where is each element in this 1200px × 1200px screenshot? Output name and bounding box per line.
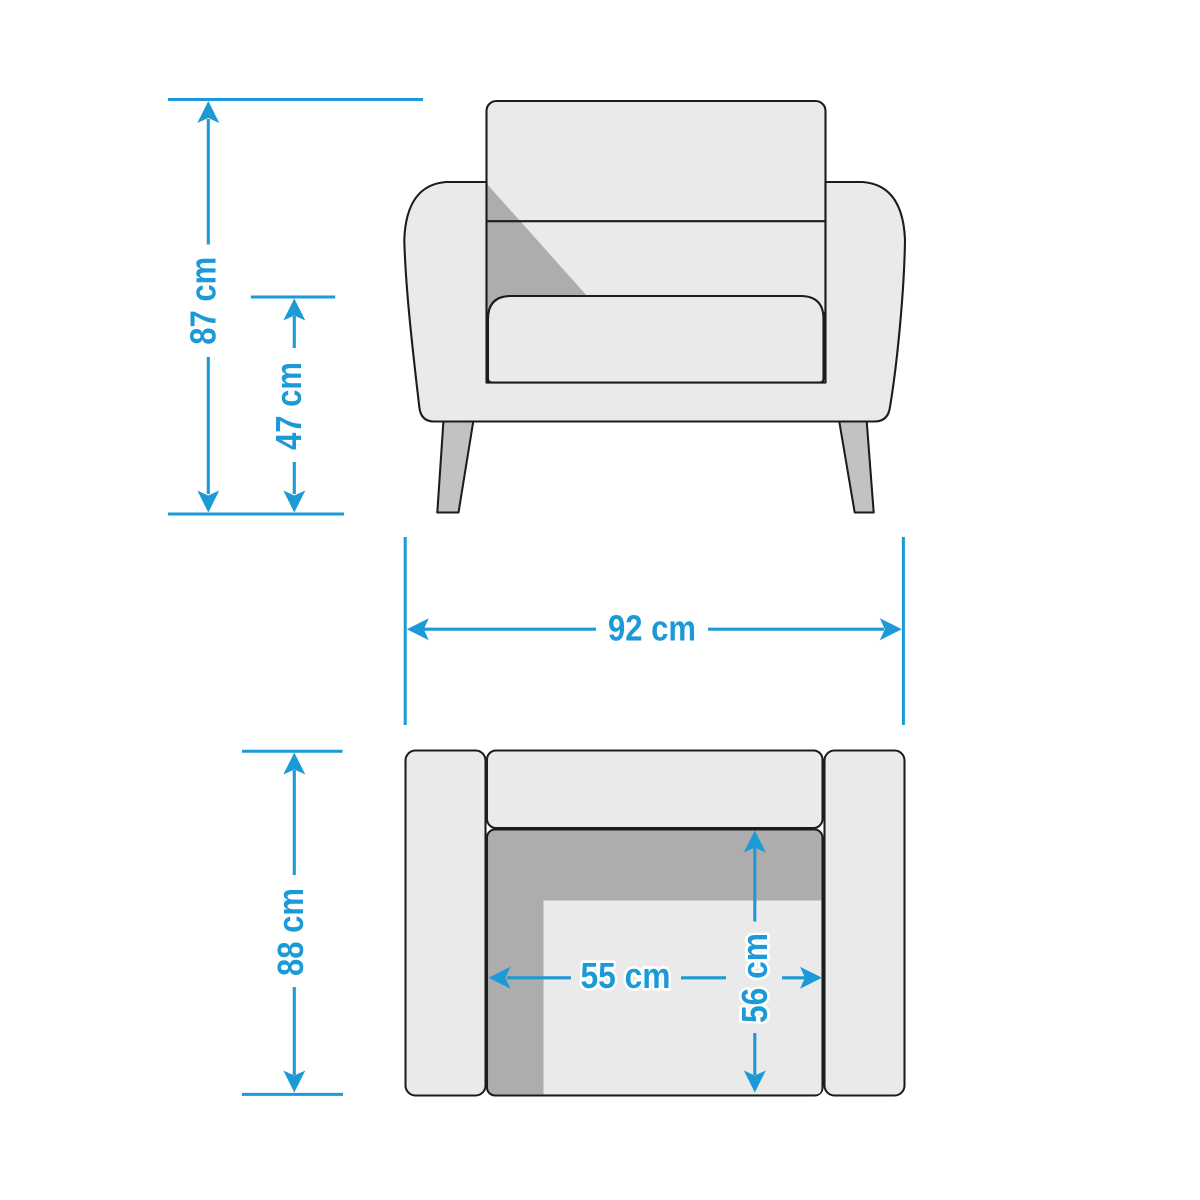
svg-text:88 cm: 88 cm	[270, 888, 311, 976]
svg-text:47 cm: 47 cm	[268, 362, 309, 450]
svg-text:55 cm: 55 cm	[581, 955, 671, 996]
svg-text:87 cm: 87 cm	[183, 257, 224, 345]
svg-text:56 cm: 56 cm	[734, 933, 775, 1023]
svg-text:92 cm: 92 cm	[608, 608, 696, 649]
